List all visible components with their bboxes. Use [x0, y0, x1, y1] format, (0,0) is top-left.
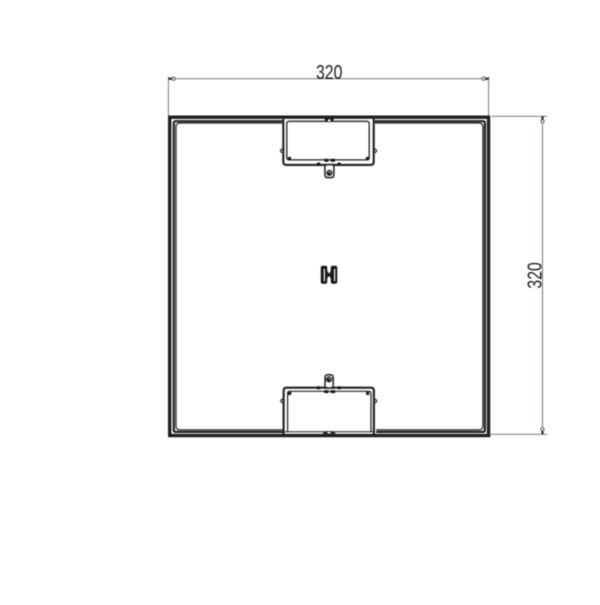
svg-text:320: 320 — [524, 262, 546, 288]
svg-text:320: 320 — [316, 61, 342, 83]
